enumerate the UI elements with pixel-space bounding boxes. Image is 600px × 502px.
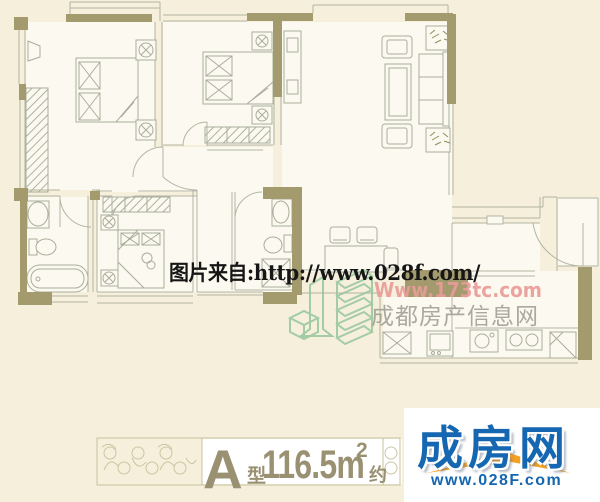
- watermark-site-name: 成都房产信息网: [371, 297, 539, 331]
- bedroom1-wardrobe: [26, 88, 48, 192]
- unit-type-letter: A: [203, 437, 243, 501]
- bedroom1-bed: [76, 58, 138, 122]
- kitchen-sink: [470, 330, 498, 352]
- unit-area-value: 116.5m: [262, 443, 364, 488]
- living-sofa: [419, 52, 449, 126]
- kitchen-fridge: [550, 332, 576, 358]
- brand-logo-url: www.028F.com: [431, 472, 562, 490]
- living-coffee-table: [385, 64, 411, 120]
- unit-area-approx: 约: [369, 461, 387, 487]
- living-tv-cabinet: [284, 31, 301, 103]
- bedroom2-closet: [205, 127, 270, 143]
- unit-area-superscript: 2: [356, 439, 368, 463]
- bedroom3-bed: [118, 230, 164, 288]
- kitchen-stove: [506, 330, 542, 350]
- bedroom2-bed: [203, 52, 273, 104]
- brand-logo-name: 成房网: [417, 412, 570, 478]
- floorplan-image: 图片来自:http://www.028f.com/ Www.173tc.com …: [0, 0, 600, 502]
- bedroom3-closet: [103, 197, 170, 212]
